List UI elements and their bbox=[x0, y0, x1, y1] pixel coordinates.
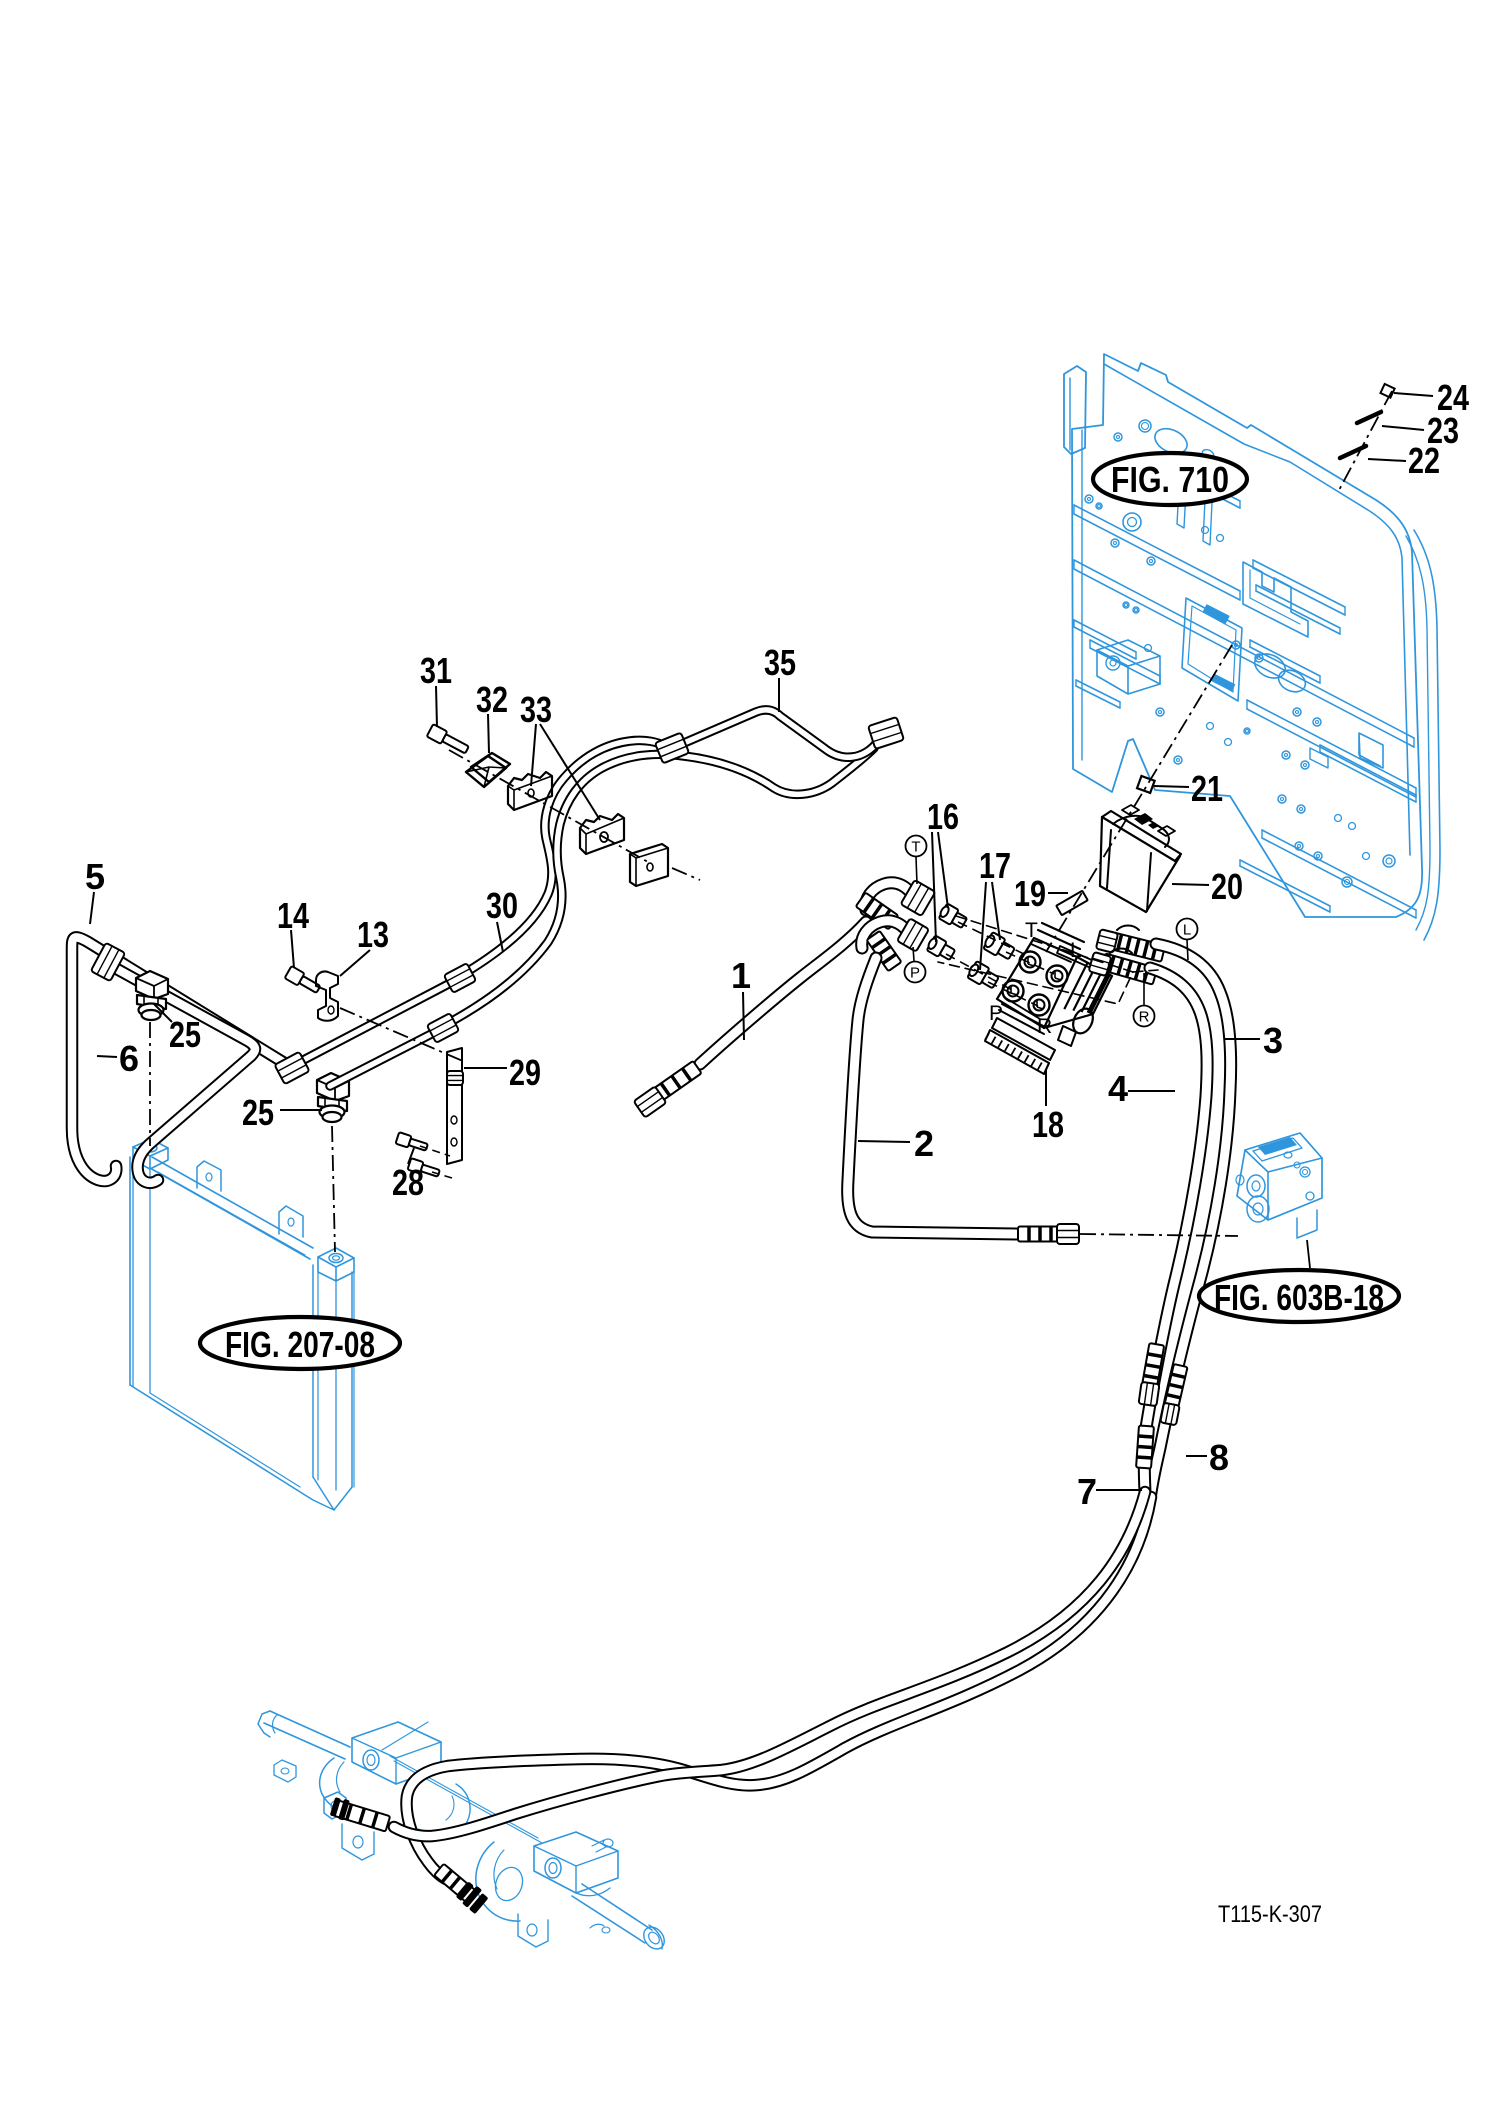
svg-text:5: 5 bbox=[85, 856, 105, 897]
svg-text:L: L bbox=[1070, 939, 1082, 962]
svg-text:25: 25 bbox=[169, 1014, 201, 1055]
svg-text:14: 14 bbox=[277, 895, 309, 936]
svg-text:18: 18 bbox=[1032, 1104, 1064, 1145]
svg-text:R: R bbox=[1037, 1015, 1052, 1038]
svg-text:6: 6 bbox=[119, 1038, 139, 1079]
svg-text:17: 17 bbox=[979, 845, 1011, 886]
svg-text:2: 2 bbox=[914, 1123, 934, 1164]
svg-text:3: 3 bbox=[1263, 1020, 1283, 1061]
svg-text:33: 33 bbox=[520, 689, 552, 730]
svg-text:P: P bbox=[989, 1002, 1003, 1025]
svg-text:8: 8 bbox=[1209, 1437, 1229, 1478]
svg-text:20: 20 bbox=[1211, 866, 1243, 907]
svg-text:35: 35 bbox=[764, 642, 796, 683]
svg-text:25: 25 bbox=[242, 1092, 274, 1133]
svg-text:28: 28 bbox=[392, 1162, 424, 1203]
svg-text:31: 31 bbox=[420, 650, 452, 691]
svg-text:19: 19 bbox=[1014, 873, 1046, 914]
svg-text:32: 32 bbox=[476, 679, 508, 720]
svg-text:30: 30 bbox=[486, 885, 518, 926]
svg-text:T115-K-307: T115-K-307 bbox=[1218, 1901, 1322, 1928]
svg-text:FIG. 207-08: FIG. 207-08 bbox=[225, 1324, 375, 1365]
svg-text:29: 29 bbox=[509, 1052, 541, 1093]
svg-text:P: P bbox=[910, 965, 920, 982]
svg-text:16: 16 bbox=[927, 796, 959, 837]
svg-text:4: 4 bbox=[1108, 1068, 1128, 1109]
svg-text:1: 1 bbox=[731, 955, 751, 996]
svg-text:21: 21 bbox=[1191, 768, 1223, 809]
svg-text:13: 13 bbox=[357, 914, 389, 955]
svg-text:T: T bbox=[1025, 919, 1038, 942]
svg-text:L: L bbox=[1183, 922, 1191, 939]
svg-text:24: 24 bbox=[1437, 377, 1469, 418]
svg-text:R: R bbox=[1139, 1009, 1150, 1026]
svg-text:7: 7 bbox=[1077, 1471, 1097, 1512]
svg-text:T: T bbox=[911, 839, 920, 856]
svg-text:FIG. 710: FIG. 710 bbox=[1111, 459, 1229, 500]
svg-text:FIG. 603B-18: FIG. 603B-18 bbox=[1214, 1277, 1384, 1318]
